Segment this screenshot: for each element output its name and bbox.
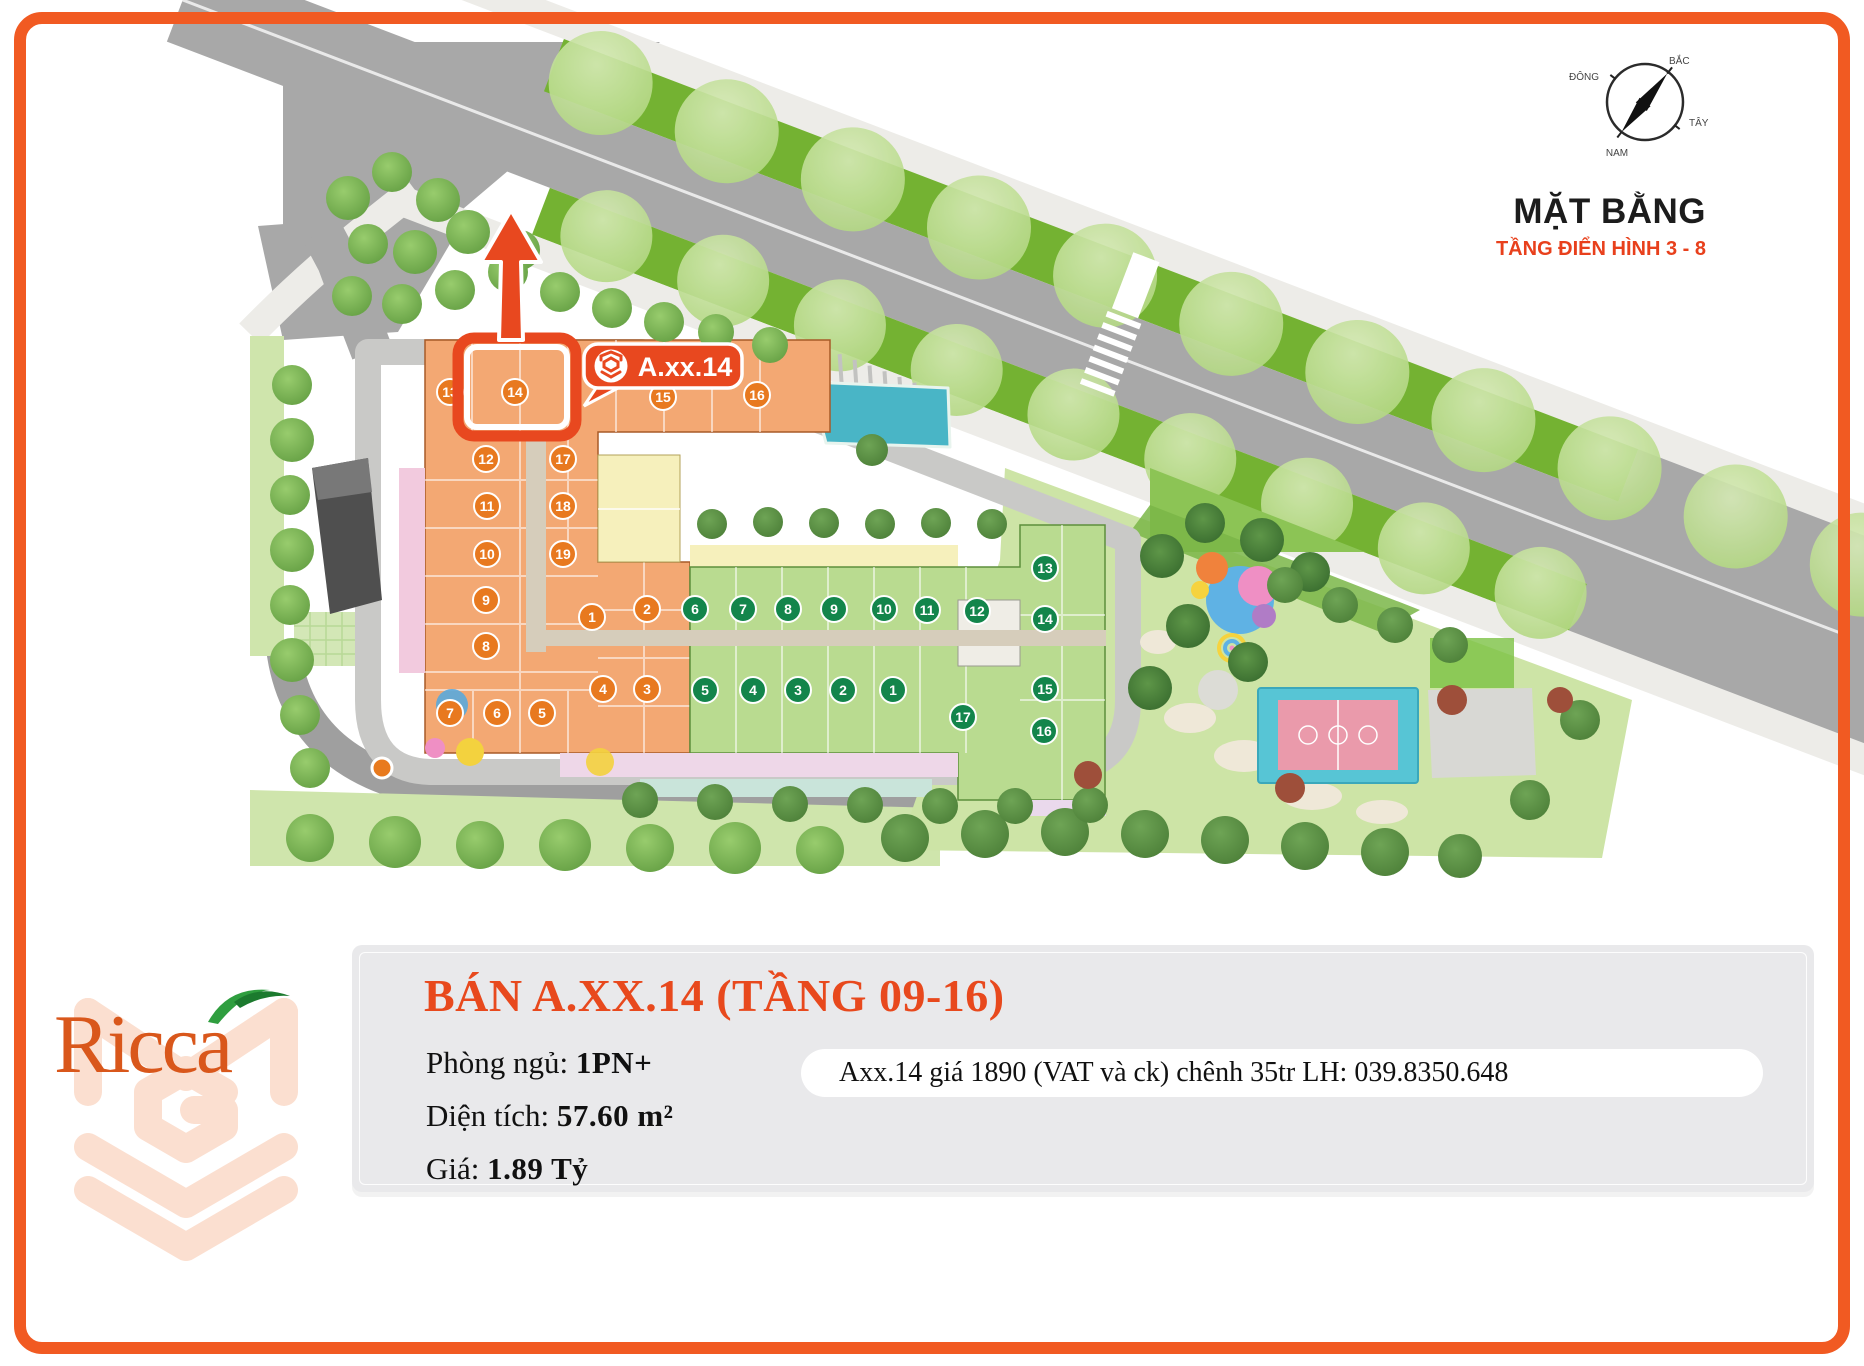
svg-text:19: 19 bbox=[555, 546, 571, 562]
unit-marker: 3 bbox=[785, 677, 811, 703]
unit-marker: 14 bbox=[1032, 606, 1058, 632]
listing-heading: BÁN A.XX.14 (TẦNG 09-16) bbox=[424, 969, 1005, 1022]
unit-marker: 9 bbox=[821, 596, 847, 622]
svg-text:14: 14 bbox=[1037, 611, 1053, 627]
unit-marker: 6 bbox=[484, 700, 510, 726]
unit-marker: 10 bbox=[474, 541, 500, 567]
unit-marker: 6 bbox=[682, 596, 708, 622]
unit-marker: 10 bbox=[871, 596, 897, 622]
unit-marker: 19 bbox=[550, 541, 576, 567]
note-field[interactable]: Axx.14 giá 1890 (VAT và ck) chênh 35tr L… bbox=[801, 1049, 1763, 1097]
price-field: Giá: 1.89 Tỷ bbox=[426, 1151, 673, 1187]
unit-marker: 16 bbox=[744, 382, 770, 408]
svg-text:4: 4 bbox=[599, 681, 607, 697]
svg-text:2: 2 bbox=[643, 601, 651, 617]
svg-text:1: 1 bbox=[889, 682, 897, 698]
unit-marker: 15 bbox=[1032, 676, 1058, 702]
unit-marker: 7 bbox=[437, 700, 463, 726]
compass-west-label: TÂY bbox=[1689, 116, 1709, 129]
unit-marker: 8 bbox=[775, 596, 801, 622]
listing-panel: BÁN A.XX.14 (TẦNG 09-16) Phòng ngủ: 1PN+… bbox=[352, 945, 1814, 1192]
unit-marker: 17 bbox=[950, 704, 976, 730]
svg-text:12: 12 bbox=[969, 603, 985, 619]
bedrooms-field: Phòng ngủ: 1PN+ bbox=[426, 1045, 673, 1081]
svg-text:14: 14 bbox=[507, 384, 523, 400]
svg-text:6: 6 bbox=[493, 705, 501, 721]
svg-text:15: 15 bbox=[1037, 681, 1053, 697]
pink-strip-left bbox=[399, 468, 425, 673]
compass-south-label: NAM bbox=[1606, 148, 1628, 159]
basketball-court bbox=[1258, 688, 1418, 783]
svg-text:5: 5 bbox=[701, 682, 709, 698]
svg-text:15: 15 bbox=[655, 389, 671, 405]
plan-header: MẶT BẰNG TẦNG ĐIỂN HÌNH 3 - 8 bbox=[1496, 192, 1706, 261]
compass-north-label: BẮC bbox=[1669, 54, 1690, 67]
unit-marker: 14 bbox=[502, 379, 528, 405]
svg-text:17: 17 bbox=[555, 451, 571, 467]
plan-subtitle: TẦNG ĐIỂN HÌNH 3 - 8 bbox=[1496, 238, 1706, 261]
svg-text:3: 3 bbox=[643, 681, 651, 697]
site-plan: 13141516121711181019912843765 6789101112… bbox=[0, 0, 1864, 940]
brand-logo: Ricca bbox=[46, 952, 326, 1272]
svg-text:16: 16 bbox=[1036, 723, 1052, 739]
unit-marker: 5 bbox=[692, 677, 718, 703]
svg-text:5: 5 bbox=[538, 705, 546, 721]
svg-text:7: 7 bbox=[446, 705, 454, 721]
svg-text:3: 3 bbox=[794, 682, 802, 698]
svg-text:16: 16 bbox=[749, 387, 765, 403]
unit-marker: 11 bbox=[474, 493, 500, 519]
unit-marker: 3 bbox=[634, 676, 660, 702]
logo-leaf-icon bbox=[204, 982, 294, 1028]
unit-marker: 4 bbox=[590, 676, 616, 702]
svg-text:8: 8 bbox=[784, 601, 792, 617]
svg-text:11: 11 bbox=[480, 498, 495, 514]
svg-text:8: 8 bbox=[482, 638, 490, 654]
svg-text:10: 10 bbox=[876, 601, 892, 617]
svg-text:18: 18 bbox=[555, 498, 571, 514]
listing-panel-inner: BÁN A.XX.14 (TẦNG 09-16) Phòng ngủ: 1PN+… bbox=[359, 952, 1807, 1185]
svg-text:9: 9 bbox=[482, 592, 490, 608]
svg-text:17: 17 bbox=[955, 709, 971, 725]
unit-marker: 17 bbox=[550, 446, 576, 472]
svg-text:12: 12 bbox=[478, 451, 494, 467]
unit-marker: 12 bbox=[964, 598, 990, 624]
svg-text:1: 1 bbox=[588, 609, 596, 625]
svg-text:9: 9 bbox=[830, 601, 838, 617]
unit-marker: 1 bbox=[579, 604, 605, 630]
svg-text:2: 2 bbox=[839, 682, 847, 698]
unit-marker: 4 bbox=[740, 677, 766, 703]
unit-badge-label: A.xx.14 bbox=[638, 352, 733, 382]
unit-marker: 8 bbox=[473, 633, 499, 659]
unit-marker: 7 bbox=[730, 596, 756, 622]
compass-icon: BẮC ĐÔNG TÂY NAM bbox=[1569, 40, 1709, 164]
svg-text:6: 6 bbox=[691, 601, 699, 617]
svg-text:13: 13 bbox=[1037, 560, 1053, 576]
unit-marker: 12 bbox=[473, 446, 499, 472]
area-field: Diện tích: 57.60 m² bbox=[426, 1098, 673, 1134]
plan-title: MẶT BẰNG bbox=[1496, 192, 1706, 232]
unit-marker: 1 bbox=[880, 677, 906, 703]
compass-east-label: ĐÔNG bbox=[1569, 70, 1599, 83]
unit-marker: 9 bbox=[473, 587, 499, 613]
svg-text:7: 7 bbox=[739, 601, 747, 617]
svg-text:11: 11 bbox=[920, 602, 935, 618]
unit-marker: 13 bbox=[1032, 555, 1058, 581]
unit-marker: 18 bbox=[550, 493, 576, 519]
unit-marker: 2 bbox=[634, 596, 660, 622]
svg-text:4: 4 bbox=[749, 682, 757, 698]
unit-marker: 11 bbox=[914, 597, 940, 623]
unit-marker: 16 bbox=[1031, 718, 1057, 744]
listing-fields: Phòng ngủ: 1PN+ Diện tích: 57.60 m² Giá:… bbox=[426, 1045, 673, 1204]
unit-marker: 5 bbox=[529, 700, 555, 726]
svg-text:10: 10 bbox=[479, 546, 495, 562]
unit-marker: 2 bbox=[830, 677, 856, 703]
